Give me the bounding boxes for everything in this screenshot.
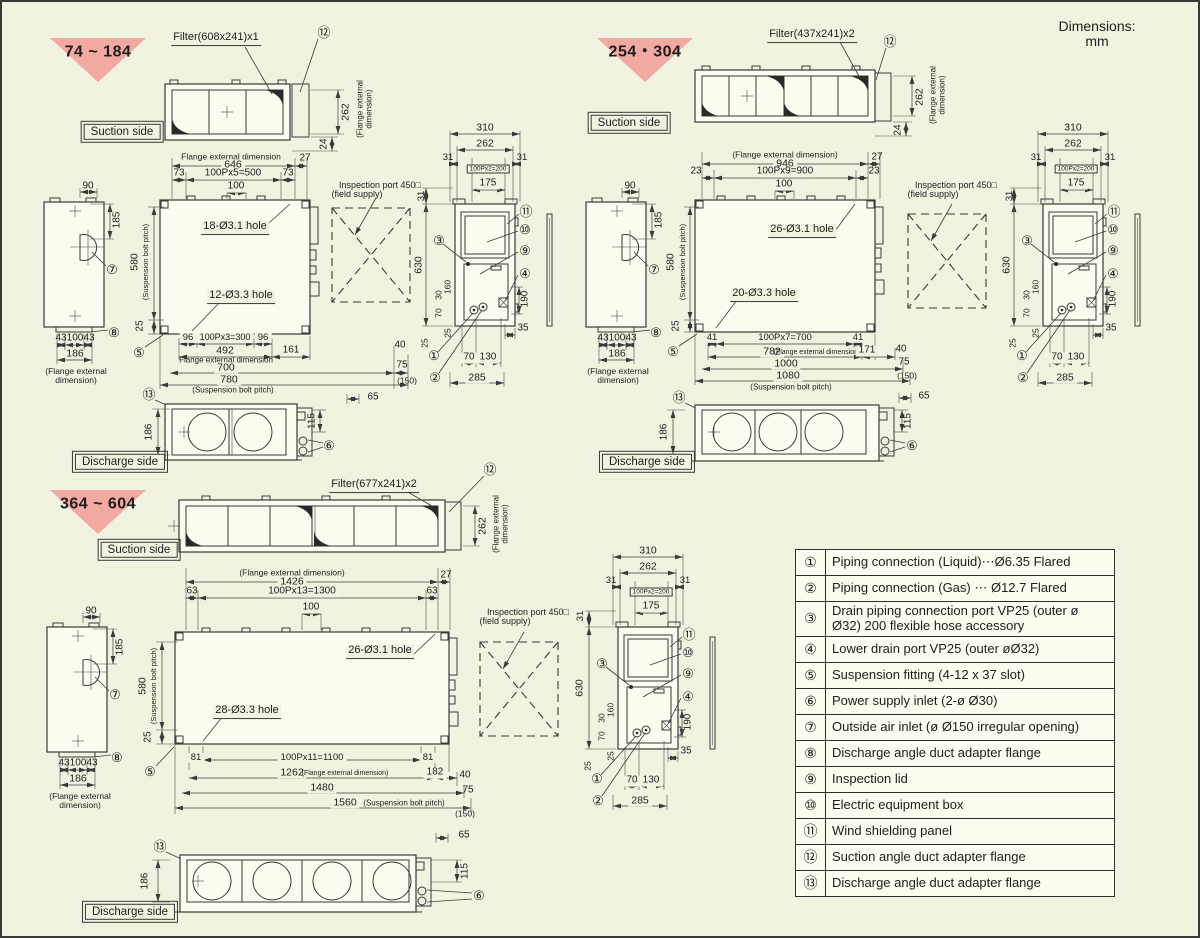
dim-label: 73 <box>173 169 184 180</box>
dim-label: 65 <box>367 393 378 404</box>
ref-9: ⑨ <box>1107 244 1119 258</box>
dim-label: 100Px2=200 <box>630 587 673 596</box>
dim-label: 186 <box>608 348 626 359</box>
dim-label: 31 <box>417 191 427 202</box>
ref-13: ⑬ <box>672 391 685 405</box>
dim-label: 182 <box>424 768 447 779</box>
dim-label: 186 <box>660 424 671 441</box>
dim-label: 262 <box>340 103 351 121</box>
dim-label: 175 <box>477 179 500 190</box>
dim-label: 186 <box>66 348 84 359</box>
dim-label: 25 <box>583 761 592 770</box>
dim-label: 43 <box>55 334 66 345</box>
dim-label: 31 <box>1005 191 1015 202</box>
legend-text: Piping connection (Liquid)⋯Ø6.35 Flared <box>826 550 1114 575</box>
dimensions-note: Dimensions: mm <box>1047 19 1148 49</box>
legend-row: ⑬Discharge angle duct adapter flange <box>796 870 1114 896</box>
dim-label: 310 <box>1064 122 1082 133</box>
dim-label: 100Px5=500 <box>202 169 264 180</box>
ref-12: ⑫ <box>483 463 496 477</box>
dim-label: 115 <box>904 413 915 429</box>
dim-label: 100Px2=200 <box>1055 164 1098 173</box>
dim-label: 35 <box>680 747 691 758</box>
dim-label: 1480 <box>307 782 336 793</box>
ref-13: ⑬ <box>153 840 166 854</box>
legend-text: Outside air inlet (ø Ø150 irregular open… <box>826 715 1114 740</box>
dim-label: 31 <box>517 153 528 163</box>
legend-row: ⑥Power supply inlet (2-ø Ø30) <box>796 688 1114 714</box>
dim-label: (field supply) <box>907 190 958 200</box>
dim-label: 630 <box>574 679 585 697</box>
dim-label: 25 <box>606 751 615 760</box>
dim-label: (Flange external dimension) <box>49 792 110 810</box>
dim-label: 24 <box>320 138 331 149</box>
dim-label: 27 <box>299 154 310 165</box>
dim-label: 31 <box>1031 153 1042 163</box>
dim-label: 190 <box>1109 291 1120 308</box>
dim-label: 190 <box>684 714 695 731</box>
dim-label: 25 <box>1008 338 1017 347</box>
dim-label: 75 <box>898 358 909 369</box>
filter-label: Filter(677x241)x2 <box>329 479 419 493</box>
dim-label: (Suspension bolt pitch) <box>750 384 831 393</box>
hole-label: 26-Ø3.1 hole <box>346 645 414 659</box>
legend-row: ⑩Electric equipment box <box>796 792 1114 818</box>
ref-9: ⑨ <box>682 667 694 681</box>
dim-label: 30 <box>1022 290 1031 299</box>
dim-label: (150) <box>455 809 475 818</box>
discharge-side-label: Discharge side <box>602 454 692 470</box>
dim-label: 25 <box>1031 328 1040 337</box>
dim-label: 262 <box>639 561 657 572</box>
dim-label: 75 <box>396 361 407 372</box>
dim-label: 630 <box>413 256 424 274</box>
dim-label: (Suspension bolt pitch) <box>142 224 150 300</box>
dim-label: 25 <box>136 320 147 331</box>
dim-label: 100Px11=1100 <box>278 753 347 763</box>
badge-364-604: 364 ~ 604 <box>60 495 136 512</box>
ref-2: ② <box>1017 371 1029 385</box>
dim-label: 100 <box>70 759 87 770</box>
dim-label: (Suspension bolt pitch) <box>192 387 273 396</box>
legend-number: ⑧ <box>796 741 826 766</box>
dim-label: 63 <box>186 587 197 598</box>
dim-label: (Suspension bolt pitch) <box>363 800 444 809</box>
dim-label: 1000 <box>771 358 800 369</box>
legend-row: ③Drain piping connection port VP25 (oute… <box>796 601 1114 636</box>
dim-label: 41 <box>850 333 867 343</box>
ref-2: ② <box>429 371 441 385</box>
legend-number: ⑥ <box>796 689 826 714</box>
legend-row: ⑤Suspension fitting (4-12 x 37 slot) <box>796 662 1114 688</box>
dim-label: 25 <box>672 320 683 331</box>
ref-2: ② <box>592 794 604 808</box>
dim-label: 96 <box>255 333 272 343</box>
dim-label: 100Px7=700 <box>755 333 815 343</box>
dim-label: 75 <box>462 786 473 797</box>
dim-label: (Suspension bolt pitch) <box>150 648 158 724</box>
dim-label: 700 <box>214 362 238 373</box>
legend-number: ④ <box>796 637 826 662</box>
dim-label: 160 <box>606 703 615 717</box>
ref-3: ③ <box>596 657 608 671</box>
discharge-side-label: Discharge side <box>75 454 165 470</box>
ref-11: ⑪ <box>1107 205 1120 219</box>
dim-label: 190 <box>521 291 532 308</box>
dim-label: (Flange external dimension) <box>587 367 648 385</box>
legend-text: Inspection lid <box>826 767 1114 792</box>
dim-label: (Flange external dimension) <box>45 367 106 385</box>
dim-label: 310 <box>476 122 494 133</box>
dim-label: 186 <box>69 773 87 784</box>
dim-label: 73 <box>282 169 293 180</box>
dim-label: 115 <box>461 863 472 879</box>
dim-label: (Flange external dimension) <box>302 770 389 778</box>
dim-label: 27 <box>871 153 882 164</box>
dim-label: 285 <box>1053 372 1077 383</box>
dim-label: (field supply) <box>479 617 530 627</box>
dim-label: (field supply) <box>331 190 382 200</box>
dim-label: 35 <box>517 324 528 335</box>
dim-label: 262 <box>477 517 488 535</box>
legend-text: Discharge angle duct adapter flange <box>826 741 1114 766</box>
legend-number: ⑦ <box>796 715 826 740</box>
dim-label: 31 <box>680 576 691 586</box>
hole-label: 26-Ø3.1 hole <box>768 224 836 238</box>
suction-side-label: Suction side <box>84 124 161 140</box>
legend-row: ⑧Discharge angle duct adapter flange <box>796 740 1114 766</box>
dim-label: 65 <box>918 392 929 403</box>
dim-label: 580 <box>137 677 148 695</box>
ref-3: ③ <box>433 234 445 248</box>
dim-label: (Flange external dimension) <box>929 66 946 124</box>
dim-label: 40 <box>394 341 405 352</box>
dim-label: 100 <box>773 180 796 191</box>
dim-label: 81 <box>420 753 437 763</box>
dim-label: 780 <box>217 374 241 385</box>
dim-label: 285 <box>628 795 652 806</box>
dim-label: 160 <box>443 280 452 294</box>
dim-label: 262 <box>914 88 925 106</box>
dim-label: 262 <box>1064 138 1082 149</box>
dim-label: 175 <box>1065 179 1088 190</box>
legend-row: ⑨Inspection lid <box>796 766 1114 792</box>
badge-74-184: 74 ~ 184 <box>65 43 132 60</box>
legend-text: Drain piping connection port VP25 (outer… <box>826 602 1114 636</box>
legend-number: ⑫ <box>796 845 826 870</box>
dim-label: 100Px2=200 <box>467 164 510 173</box>
dim-label: 31 <box>606 576 617 586</box>
discharge-side-label: Discharge side <box>85 904 175 920</box>
dim-label: 90 <box>624 182 635 193</box>
dim-label: 70 <box>1022 308 1031 317</box>
dim-label: (150) <box>397 376 417 385</box>
dim-label: 23 <box>868 167 879 178</box>
badge-254-304: 254・304 <box>609 43 682 60</box>
dim-label: 70 <box>623 776 640 787</box>
ref-1: ① <box>1016 349 1028 363</box>
suction-side-label: Suction side <box>101 542 178 558</box>
ref-7: ⑦ <box>648 263 660 277</box>
dim-label: 70 <box>1048 353 1065 364</box>
dim-label: 100 <box>225 182 248 193</box>
dim-label: 100 <box>67 334 84 345</box>
legend-number: ⑪ <box>796 819 826 844</box>
ref-5: ⑤ <box>667 345 679 359</box>
dim-label: 70 <box>597 731 606 740</box>
ref-4: ④ <box>519 267 531 281</box>
dim-label: 43 <box>597 334 608 345</box>
ref-13: ⑬ <box>142 388 155 402</box>
ref-10: ⑩ <box>519 223 531 237</box>
legend-number: ② <box>796 576 826 601</box>
ref-8: ⑧ <box>108 326 120 340</box>
legend-number: ⑨ <box>796 767 826 792</box>
ref-10: ⑩ <box>682 646 694 660</box>
dim-label: 160 <box>1031 280 1040 294</box>
dim-label: 100Px9=900 <box>754 167 816 178</box>
legend-row: ⑪Wind shielding panel <box>796 818 1114 844</box>
dim-label: 23 <box>690 167 701 178</box>
dim-label: 25 <box>443 328 452 337</box>
dim-label: 30 <box>597 713 606 722</box>
ref-12: ⑫ <box>317 26 330 40</box>
legend-number: ⑩ <box>796 793 826 818</box>
dim-label: 90 <box>82 182 93 193</box>
dim-label: 43 <box>86 759 97 770</box>
dim-label: 285 <box>465 372 489 383</box>
hole-label: 12-Ø3.3 hole <box>207 290 275 304</box>
ref-7: ⑦ <box>109 688 121 702</box>
hole-label: 18-Ø3.1 hole <box>201 221 269 235</box>
dim-label: 31 <box>443 153 454 163</box>
ref-1: ① <box>428 349 440 363</box>
dim-label: 175 <box>640 602 663 613</box>
hole-label: 28-Ø3.3 hole <box>213 705 281 719</box>
dim-label: 27 <box>440 571 451 582</box>
hole-label: 20-Ø3.3 hole <box>730 288 798 302</box>
dim-label: 43 <box>58 759 69 770</box>
dim-label: 90 <box>85 607 96 618</box>
dim-label: 185 <box>116 639 127 656</box>
dim-label: 130 <box>477 353 500 364</box>
ref-5: ⑤ <box>144 765 156 779</box>
ref-4: ④ <box>682 690 694 704</box>
ref-10: ⑩ <box>1107 223 1119 237</box>
ref-6: ⑥ <box>906 439 918 453</box>
ref-11: ⑪ <box>682 628 695 642</box>
legend-text: Suction angle duct adapter flange <box>826 845 1114 870</box>
legend-text: Electric equipment box <box>826 793 1114 818</box>
ref-8: ⑧ <box>650 326 662 340</box>
dim-label: 100 <box>300 603 323 614</box>
dim-label: 70 <box>460 353 477 364</box>
ref-6: ⑥ <box>323 439 335 453</box>
ref-9: ⑨ <box>519 244 531 258</box>
dim-label: 115 <box>308 413 319 429</box>
dim-label: 30 <box>434 290 443 299</box>
dim-label: 171 <box>856 346 879 357</box>
dim-label: 580 <box>665 253 676 271</box>
dim-label: (Flange external dimension) <box>356 80 373 138</box>
ref-11: ⑪ <box>519 205 532 219</box>
legend-text: Lower drain port VP25 (outer øØ32) <box>826 637 1114 662</box>
dim-label: (150) <box>897 371 917 380</box>
dim-label: (Flange external dimension) <box>492 495 509 553</box>
dim-label: 63 <box>426 587 437 598</box>
ref-5: ⑤ <box>133 346 145 360</box>
filter-label: Filter(437x241)x2 <box>767 29 857 43</box>
dim-label: 35 <box>1105 324 1116 335</box>
legend-number: ⑤ <box>796 663 826 688</box>
legend-row: ⑦Outside air inlet (ø Ø150 irregular ope… <box>796 714 1114 740</box>
dim-label: 130 <box>1065 353 1088 364</box>
dim-label: 100 <box>609 334 626 345</box>
legend-text: Wind shielding panel <box>826 819 1114 844</box>
ref-8: ⑧ <box>111 751 123 765</box>
filter-label: Filter(608x241)x1 <box>171 32 261 46</box>
dim-label: 25 <box>144 731 155 742</box>
dim-label: 25 <box>420 338 429 347</box>
dim-label: 262 <box>476 138 494 149</box>
dim-label: 185 <box>655 212 666 229</box>
legend-table: ①Piping connection (Liquid)⋯Ø6.35 Flared… <box>795 549 1115 897</box>
dim-label: 96 <box>180 333 197 343</box>
legend-row: ④Lower drain port VP25 (outer øØ32) <box>796 636 1114 662</box>
dim-label: 186 <box>141 873 152 890</box>
dim-label: (Flange external dimension) <box>774 349 861 357</box>
dim-label: 70 <box>434 308 443 317</box>
dim-label: 130 <box>640 776 663 787</box>
ref-1: ① <box>591 772 603 786</box>
legend-row: ⑫Suction angle duct adapter flange <box>796 844 1114 870</box>
legend-text: Piping connection (Gas) ⋯ Ø12.7 Flared <box>826 576 1114 601</box>
dim-label: 81 <box>188 753 205 763</box>
dim-label: 100Px3=300 <box>197 333 254 343</box>
dim-label: 40 <box>895 345 906 356</box>
dim-label: 65 <box>458 831 469 842</box>
legend-row: ②Piping connection (Gas) ⋯ Ø12.7 Flared <box>796 575 1114 601</box>
dim-label: 185 <box>113 212 124 229</box>
ref-7: ⑦ <box>106 263 118 277</box>
ref-3: ③ <box>1021 234 1033 248</box>
dim-label: 310 <box>639 545 657 556</box>
dim-label: 186 <box>145 424 156 441</box>
dim-label: (Suspension bolt pitch) <box>679 224 687 300</box>
dim-label: 24 <box>894 124 905 135</box>
dim-label: 40 <box>459 771 470 782</box>
dim-label: 43 <box>625 334 636 345</box>
dim-label: 41 <box>704 333 721 343</box>
dim-label: 630 <box>1001 256 1012 274</box>
ref-6: ⑥ <box>473 889 485 903</box>
legend-number: ③ <box>796 602 826 636</box>
dim-label: 31 <box>1105 153 1116 163</box>
legend-row: ①Piping connection (Liquid)⋯Ø6.35 Flared <box>796 550 1114 575</box>
dim-label: 161 <box>280 346 303 357</box>
dim-label: 1560 <box>330 797 359 808</box>
ref-4: ④ <box>1107 267 1119 281</box>
dim-label: 580 <box>129 253 140 271</box>
hvac-dimension-drawing: 74 ~ 184Filter(608x241)x1⑫Suction side26… <box>0 0 1200 938</box>
dim-label: 43 <box>83 334 94 345</box>
legend-text: Discharge angle duct adapter flange <box>826 871 1114 896</box>
dim-label: 100Px13=1300 <box>265 587 339 598</box>
ref-12: ⑫ <box>883 35 896 49</box>
dim-label: 1080 <box>773 370 802 381</box>
legend-number: ① <box>796 550 826 575</box>
legend-text: Power supply inlet (2-ø Ø30) <box>826 689 1114 714</box>
dim-label: 31 <box>576 611 586 622</box>
suction-side-label: Suction side <box>591 115 668 131</box>
legend-text: Suspension fitting (4-12 x 37 slot) <box>826 663 1114 688</box>
legend-number: ⑬ <box>796 871 826 896</box>
